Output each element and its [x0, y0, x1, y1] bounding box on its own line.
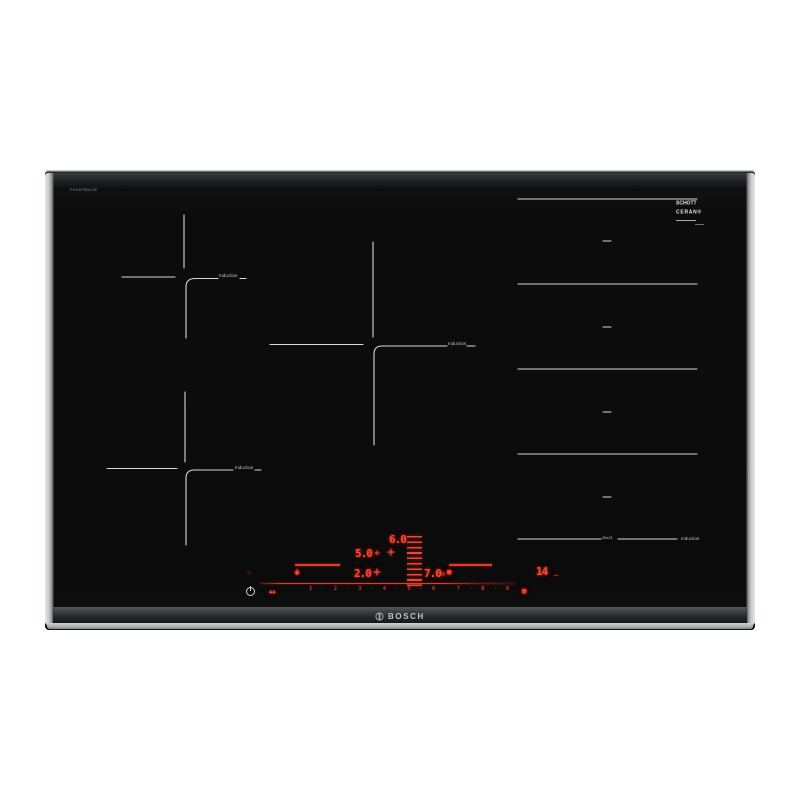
slider-dot: ·: [493, 586, 496, 592]
power-level-display-middle: 5.0: [355, 548, 372, 559]
move-arrows-icon: ▲▲: [269, 589, 276, 595]
power-icon: [246, 587, 255, 596]
slider-track: [260, 583, 515, 584]
slider-dot: ·: [370, 586, 373, 592]
induction-label-bottomleft: Induction: [235, 466, 254, 470]
zone-center-cross: [270, 242, 475, 445]
bosch-logo-text: BOSCH: [388, 612, 425, 621]
sensor-group-line: [295, 564, 340, 566]
chef-icon: ▲: [295, 569, 299, 576]
slider-number: 9: [506, 586, 509, 592]
flex-level-bars: [407, 536, 422, 588]
slider-number: 8: [481, 586, 484, 592]
dot-icon: •: [447, 569, 451, 576]
timer-unit-dash-icon: –: [554, 572, 558, 579]
zone-cross-indicator-3: +: [373, 566, 381, 579]
clock-mini-icon: ⊙: [441, 571, 445, 578]
induction-label-topleft: Induction: [219, 274, 238, 278]
product-photo: PXV875DC1E SCHOTT CERAN® Induction Induc…: [0, 0, 800, 800]
induction-hob: PXV875DC1E SCHOTT CERAN® Induction Induc…: [45, 170, 755, 630]
power-level-display-lower: 2.0: [354, 568, 371, 579]
induction-label-center: Induction: [448, 342, 467, 346]
slider-number: 4: [383, 586, 386, 592]
power-level-display-right: 7.0: [424, 568, 441, 579]
induction-label-flex: Induction: [681, 537, 700, 541]
zone-cross-indicator-1: +: [374, 549, 380, 559]
bosch-logo-icon: [375, 612, 384, 621]
power-level-display-top: 6.0: [389, 534, 406, 545]
slider-dot: ·: [395, 586, 398, 592]
bosch-badge: BOSCH: [45, 610, 755, 622]
zone-cross-indicator-2: +: [387, 546, 395, 559]
slider-dot: ·: [420, 586, 423, 592]
slider-number: 7: [457, 586, 460, 592]
timer-display: 14: [536, 566, 547, 577]
pan-detect-dim-icon: ⊙: [247, 570, 251, 577]
slider-number: 5: [407, 586, 410, 592]
slider-number: 3: [358, 586, 361, 592]
bridge-group-line: [449, 564, 492, 566]
power-slider-scale: 1 · 2 · 3 · 4 · 5 · 6 · 7 · 8 · 9: [309, 586, 509, 592]
slider-number: 6: [432, 586, 435, 592]
slider-dot: ·: [469, 586, 472, 592]
slider-dot: ·: [346, 586, 349, 592]
slider-dot: ·: [444, 586, 447, 592]
alarm-clock-icon: ⊙: [522, 588, 526, 595]
slider-number: 2: [334, 586, 337, 592]
slider-dot: ·: [321, 586, 324, 592]
front-bottom-strip: [47, 623, 753, 629]
zone-markings: [45, 170, 755, 630]
slider-number: 1: [309, 586, 312, 592]
flex-size-label: 45x21: [602, 536, 613, 540]
flex-zone-lines: [518, 199, 697, 539]
